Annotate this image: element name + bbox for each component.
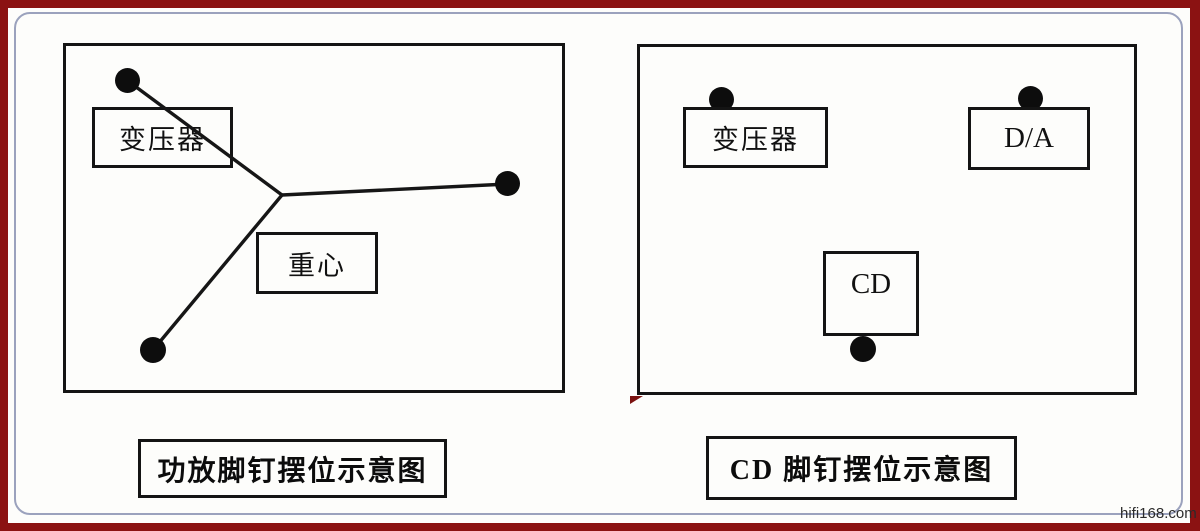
cd-player-label: CD: [851, 268, 891, 301]
watermark-text: hifi168.com: [1120, 505, 1197, 522]
spike-link-lines: [66, 46, 562, 390]
amp-center-of-gravity-label: 重心: [288, 244, 346, 283]
amp-caption-text: 功放脚钉摆位示意图: [157, 449, 427, 489]
dac-label-box: D/A: [968, 107, 1090, 170]
cd-transformer-label-box: 变压器: [683, 107, 828, 168]
amp-spike-dot-bottom-left: [140, 337, 166, 363]
amp-transformer-label-box: 变压器: [92, 107, 233, 168]
red-artifact-mark: [630, 396, 643, 404]
cd-caption-box: CD 脚钉摆位示意图: [706, 436, 1017, 500]
amp-transformer-label: 变压器: [119, 118, 206, 157]
amp-center-of-gravity-box: 重心: [256, 232, 378, 294]
dac-label: D/A: [1004, 122, 1054, 155]
cd-spike-dot-bottom: [850, 336, 876, 362]
cd-transformer-label: 变压器: [712, 118, 799, 157]
amp-spike-dot-right: [495, 171, 520, 196]
cd-caption-text: CD 脚钉摆位示意图: [730, 448, 993, 488]
cd-player-label-box: CD: [823, 251, 919, 336]
amp-chassis-outline: 变压器 重心: [63, 43, 565, 393]
cd-chassis-outline: 变压器 D/A CD: [637, 44, 1137, 395]
scanned-page: { "frame": { "outer_border_color": "#8b1…: [0, 0, 1200, 531]
amp-spike-dot-top-left: [115, 68, 140, 93]
amp-caption-box: 功放脚钉摆位示意图: [138, 439, 447, 498]
